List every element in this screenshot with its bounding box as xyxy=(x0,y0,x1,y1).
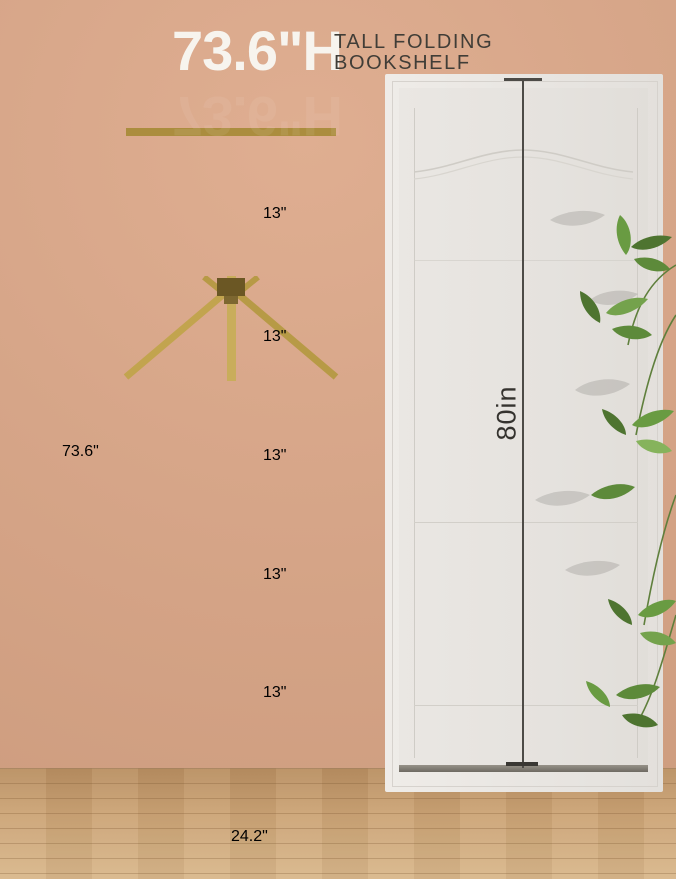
gap-label: 13" xyxy=(263,447,286,465)
title-reflection: 73.6"H xyxy=(172,84,342,149)
title-sub-line2: BOOKSHELF xyxy=(334,53,471,74)
scene: 80in xyxy=(0,0,676,879)
door-handle-plate xyxy=(432,462,443,509)
gap-label: 13" xyxy=(263,566,286,584)
door-height-label: 80in xyxy=(492,385,523,440)
gap-label: 13" xyxy=(263,328,286,346)
shelf-fold-brace xyxy=(120,276,342,381)
door-dimension-tick-bottom xyxy=(506,762,538,766)
bamboo-plant xyxy=(536,195,676,775)
title-sub-line1: TALL FOLDING xyxy=(334,32,493,53)
door-panel-line-left xyxy=(414,108,415,758)
title-height: 73.6"H xyxy=(172,18,342,83)
gap-label: 13" xyxy=(263,205,286,223)
width-label: 24.2" xyxy=(231,828,268,846)
gap-label: 13" xyxy=(263,684,286,702)
total-height-label: 73.6" xyxy=(62,443,99,461)
